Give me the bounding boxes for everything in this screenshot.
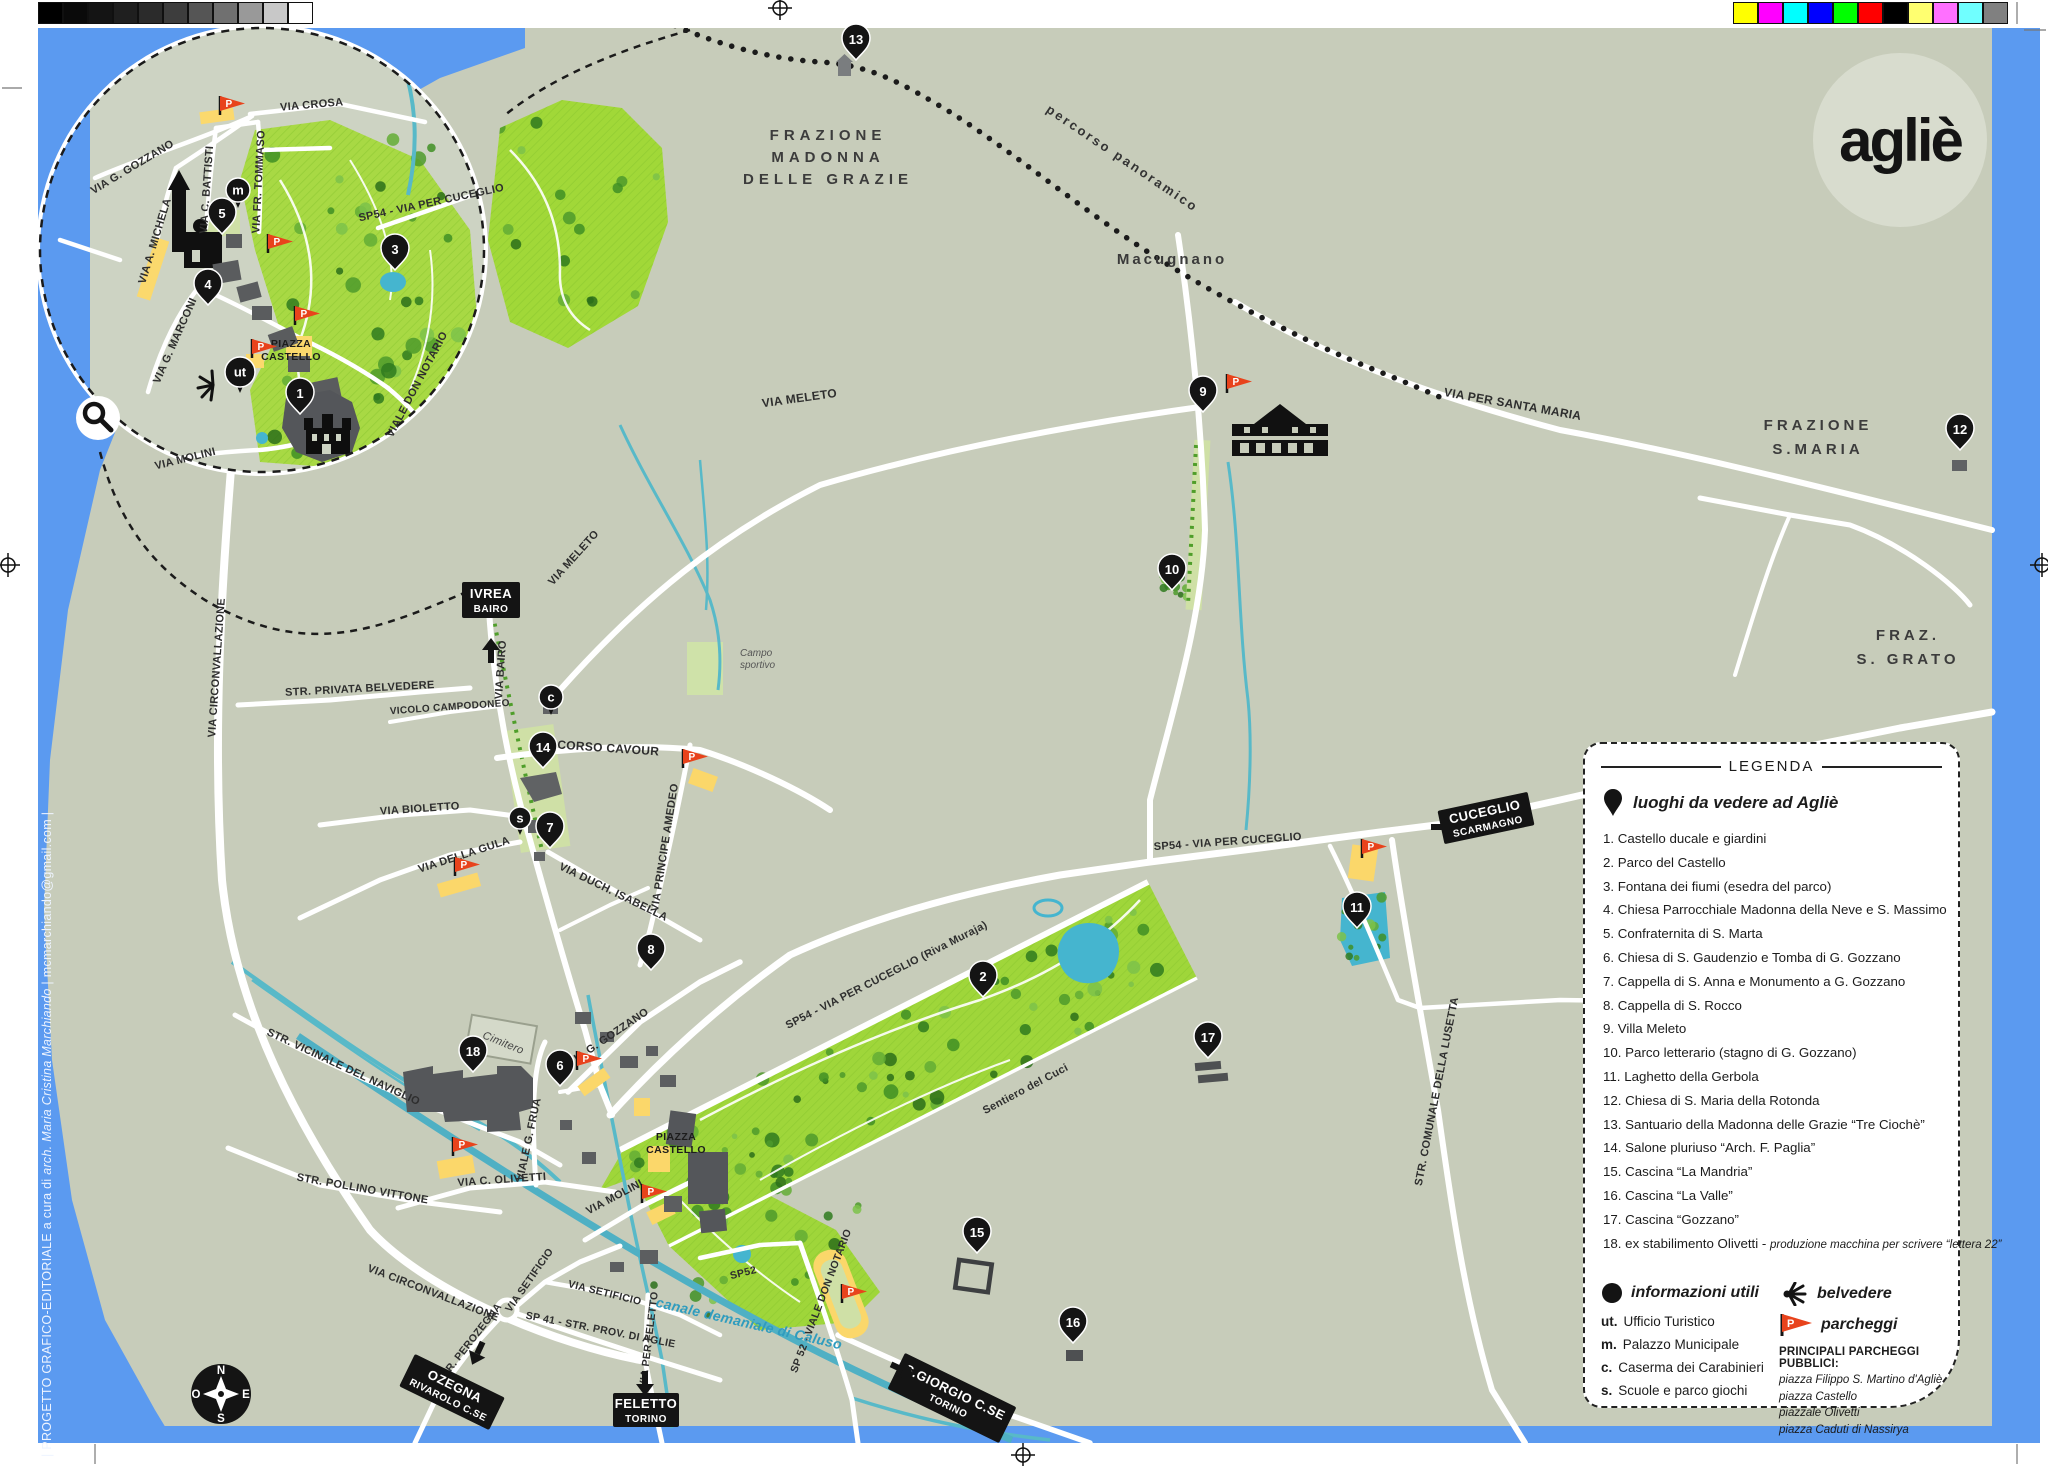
area-label: FRAZIONE <box>1764 417 1873 434</box>
legend-belvedere-label: belvedere <box>1817 1285 1892 1303</box>
sign-line2: TORINO <box>625 1414 667 1425</box>
legend-item-text: 15. Cascina “La Mandria” <box>1603 1164 1752 1179</box>
legend-info-key: c. <box>1601 1360 1612 1375</box>
parking-letter: P <box>274 237 281 248</box>
area-label: sportivo <box>740 660 775 671</box>
map-pin-number: 2 <box>979 969 986 984</box>
sign-line2: BAIRO <box>474 604 509 615</box>
letter-marker-label: c <box>547 690 554 705</box>
parking-letter: P <box>1368 842 1375 853</box>
legend-item: 10. Parco letterario (stagno di G. Gozza… <box>1603 1041 1942 1065</box>
legend-info-item: ut.Ufficio Turistico <box>1601 1310 1779 1333</box>
legend-item-text: 1. Castello ducale e giardini <box>1603 831 1766 846</box>
color-swatch <box>1933 2 1958 24</box>
road-label: Macugnano <box>1117 251 1227 268</box>
legend-item: 6. Chiesa di S. Gaudenzio e Tomba di G. … <box>1603 946 1942 970</box>
letter-marker-label: ut <box>234 365 247 380</box>
legend-item-note: produzione macchina per scrivere “letter… <box>1770 1239 2001 1251</box>
fountain-pond <box>380 272 406 292</box>
area-label: DELLE GRAZIE <box>743 171 913 188</box>
parking-letter: P <box>1233 377 1240 388</box>
legend-item: 12. Chiesa di S. Maria della Rotonda <box>1603 1089 1942 1113</box>
legend-info-value: Caserma dei Carabinieri <box>1618 1360 1764 1375</box>
legend-item-text: 13. Santuario della Madonna delle Grazie… <box>1603 1117 1925 1132</box>
svg-text:P: P <box>1787 1318 1794 1330</box>
legend-parking-item: piazza Castello <box>1779 1389 1948 1406</box>
legend-info-item: s.Scuole e parco giochi <box>1601 1379 1779 1402</box>
legend-item: 5. Confraternita di S. Marta <box>1603 922 1942 946</box>
compass-w: O <box>192 1389 201 1401</box>
grayscale-swatch <box>238 2 263 24</box>
parking-flag-icon: P <box>1779 1312 1813 1338</box>
legend-info-list: ut.Ufficio Turisticom.Palazzo Municipale… <box>1601 1310 1779 1402</box>
compass-s: S <box>217 1413 225 1425</box>
map-pin-number: 15 <box>970 1225 984 1240</box>
tourist-map-page: VIA MELETOVIA MELETOSTR. PRIVATA BELVEDE… <box>0 0 2048 1466</box>
legend-item-text: 4. Chiesa Parrocchiale Madonna della Nev… <box>1603 902 1947 917</box>
color-swatch <box>1908 2 1933 24</box>
legend-item-text: 7. Cappella di S. Anna e Monumento a G. … <box>1603 974 1905 989</box>
legend-item: 7. Cappella di S. Anna e Monumento a G. … <box>1603 970 1942 994</box>
legend-info-value: Scuole e parco giochi <box>1618 1383 1747 1398</box>
legend-info-title: informazioni utili <box>1631 1284 1759 1302</box>
chiesa-s-maria-rotonda-building <box>1952 460 1967 471</box>
area-label: PIAZZA <box>656 1131 696 1143</box>
legend-panel: LEGENDA luoghi da vedere ad Agliè 1. Cas… <box>1583 742 1960 1408</box>
color-calibration-strip <box>1733 2 2008 24</box>
map-pin-number: 17 <box>1201 1030 1215 1045</box>
direction-sign[interactable]: IVREABAIRO <box>462 582 520 618</box>
sign-line1: IVREA <box>470 586 512 601</box>
legend-item: 11. Laghetto della Gerbola <box>1603 1065 1942 1089</box>
legend-item-text: 18. ex stabilimento Olivetti - <box>1603 1236 1766 1251</box>
grayscale-swatch <box>113 2 138 24</box>
grayscale-swatch <box>138 2 163 24</box>
legend-info-value: Palazzo Municipale <box>1623 1337 1739 1352</box>
color-swatch <box>1858 2 1883 24</box>
grayscale-calibration-strip <box>38 2 313 24</box>
legend-item: 1. Castello ducale e giardini <box>1603 827 1942 851</box>
legend-item-text: 3. Fontana dei fiumi (esedra del parco) <box>1603 879 1831 894</box>
color-swatch <box>1733 2 1758 24</box>
divider <box>1822 766 1942 768</box>
legend-item: 13. Santuario della Madonna delle Grazie… <box>1603 1113 1942 1137</box>
grayscale-swatch <box>213 2 238 24</box>
legend-parking-item: piazza Caduti di Nassirya <box>1779 1422 1948 1439</box>
parking-letter: P <box>226 99 233 110</box>
map-pin-number: 12 <box>1953 422 1967 437</box>
legend-places-title: luoghi da vedere ad Agliè <box>1633 793 1838 813</box>
cascina-la-valle-building <box>1066 1350 1083 1361</box>
park-lake <box>1058 923 1119 983</box>
legend-info-item: c.Caserma dei Carabinieri <box>1601 1356 1779 1379</box>
color-swatch <box>1783 2 1808 24</box>
legend-item: 4. Chiesa Parrocchiale Madonna della Nev… <box>1603 898 1942 922</box>
area-label: S.MARIA <box>1772 441 1863 458</box>
color-swatch <box>1808 2 1833 24</box>
divider <box>1601 766 1721 768</box>
legend-item: 2. Parco del Castello <box>1603 851 1942 875</box>
magnifier-icon <box>76 396 120 440</box>
aglie-logo: agliè <box>1813 53 1987 227</box>
legend-item-text: 8. Cappella di S. Rocco <box>1603 998 1742 1013</box>
map-pin-number: 11 <box>1350 900 1364 915</box>
legend-item: 3. Fontana dei fiumi (esedra del parco) <box>1603 875 1942 899</box>
legend-item: 9. Villa Meleto <box>1603 1017 1942 1041</box>
legend-item: 17. Cascina “Gozzano” <box>1603 1208 1942 1232</box>
credit-text: | PROGETTO GRAFICO-EDITORIALE a cura di … <box>40 952 66 1457</box>
castle-icon <box>304 414 351 454</box>
legend-item-text: 16. Cascina “La Valle” <box>1603 1188 1733 1203</box>
parking-letter: P <box>461 860 468 871</box>
color-swatch <box>1883 2 1908 24</box>
compass-n: N <box>217 1365 225 1377</box>
legend-parking-item: piazza Filippo S. Martino d'Agliè <box>1779 1372 1948 1389</box>
map-pin-number: 10 <box>1165 562 1179 577</box>
grayscale-swatch <box>163 2 188 24</box>
parking-letter: P <box>301 309 308 320</box>
legend-items-list: 1. Castello ducale e giardini2. Parco de… <box>1603 827 1942 1257</box>
map-pin-number: 8 <box>647 942 654 957</box>
legend-item: 18. ex stabilimento Olivetti - produzion… <box>1603 1232 1942 1258</box>
color-swatch <box>1758 2 1783 24</box>
legend-info-key: s. <box>1601 1383 1612 1398</box>
legend-item: 15. Cascina “La Mandria” <box>1603 1160 1942 1184</box>
area-label: CASTELLO <box>646 1144 706 1156</box>
letter-marker-label: s <box>516 811 523 826</box>
legend-item-text: 2. Parco del Castello <box>1603 855 1726 870</box>
area-label: CASTELLO <box>261 351 321 363</box>
grayscale-swatch <box>38 2 63 24</box>
castello-ducale <box>688 1152 728 1204</box>
legend-item: 14. Salone pluriuso “Arch. F. Paglia” <box>1603 1136 1942 1160</box>
legend-parking-list: piazza Filippo S. Martino d'Aglièpiazza … <box>1779 1372 1948 1438</box>
legend-item-text: 10. Parco letterario (stagno di G. Gozza… <box>1603 1045 1857 1060</box>
parking-letter: P <box>648 1187 655 1198</box>
legend-item: 8. Cappella di S. Rocco <box>1603 994 1942 1018</box>
map-pin-number: 16 <box>1066 1315 1080 1330</box>
map-pin-number: 14 <box>536 740 551 755</box>
legend-item-text: 5. Confraternita di S. Marta <box>1603 926 1763 941</box>
legend-parking-item: piazzale Olivetti <box>1779 1405 1948 1422</box>
color-swatch <box>1983 2 2008 24</box>
belvedere-icon <box>1779 1282 1809 1306</box>
grayscale-swatch <box>88 2 113 24</box>
legend-info-key: m. <box>1601 1337 1617 1352</box>
area-label: Campo <box>740 648 773 659</box>
parking-letter: P <box>583 1054 590 1065</box>
grayscale-swatch <box>263 2 288 24</box>
info-dot-icon <box>1601 1282 1623 1304</box>
legend-info-item: m.Palazzo Municipale <box>1601 1333 1779 1356</box>
map-pin-number: 13 <box>849 32 863 47</box>
compass-e: E <box>242 1389 250 1401</box>
legend-item-text: 11. Laghetto della Gerbola <box>1603 1069 1759 1084</box>
area-label: MADONNA <box>771 149 884 166</box>
map-pin-number: 1 <box>296 386 303 401</box>
direction-sign[interactable]: FELETTOTORINO <box>613 1393 679 1427</box>
legend-item-text: 6. Chiesa di S. Gaudenzio e Tomba di G. … <box>1603 950 1901 965</box>
color-swatch <box>1958 2 1983 24</box>
legend-info-key: ut. <box>1601 1314 1618 1329</box>
legend-parking-heading: PRINCIPALI PARCHEGGI PUBBLICI: <box>1779 1346 1948 1370</box>
grayscale-swatch <box>188 2 213 24</box>
map-pin-number: 6 <box>556 1058 563 1073</box>
map-pin-number: 18 <box>466 1044 480 1059</box>
sign-line1: FELETTO <box>615 1396 677 1411</box>
legend-item-text: 9. Villa Meleto <box>1603 1021 1686 1036</box>
area-label: FRAZ. <box>1876 627 1940 644</box>
map-pin-icon <box>1603 789 1623 817</box>
legend-item-text: 12. Chiesa di S. Maria della Rotonda <box>1603 1093 1820 1108</box>
area-label: S. GRATO <box>1856 651 1959 668</box>
parking-letter: P <box>848 1287 855 1298</box>
grayscale-swatch <box>63 2 88 24</box>
parking-letter: P <box>258 342 265 353</box>
area-label: FRAZIONE <box>770 127 887 144</box>
legend-parking-label: parcheggi <box>1821 1316 1897 1334</box>
map-pin-number: 7 <box>546 820 553 835</box>
letter-marker-label: m <box>232 183 244 198</box>
color-swatch <box>1833 2 1858 24</box>
legend-item-text: 17. Cascina “Gozzano” <box>1603 1212 1739 1227</box>
parking-letter: P <box>689 752 696 763</box>
legend-item: 16. Cascina “La Valle” <box>1603 1184 1942 1208</box>
map-pin-number: 9 <box>1199 384 1206 399</box>
map-pin-number: 4 <box>204 277 212 292</box>
legend-title: LEGENDA <box>1729 758 1815 775</box>
area-label: PIAZZA <box>271 338 311 350</box>
grayscale-swatch <box>288 2 313 24</box>
legend-info-value: Ufficio Turistico <box>1624 1314 1715 1329</box>
legend-item-text: 14. Salone pluriuso “Arch. F. Paglia” <box>1603 1140 1815 1155</box>
parking-letter: P <box>459 1140 466 1151</box>
frame-right <box>1992 28 2040 1443</box>
map-pin-number: 5 <box>218 206 225 221</box>
map-pin-number: 3 <box>391 242 398 257</box>
